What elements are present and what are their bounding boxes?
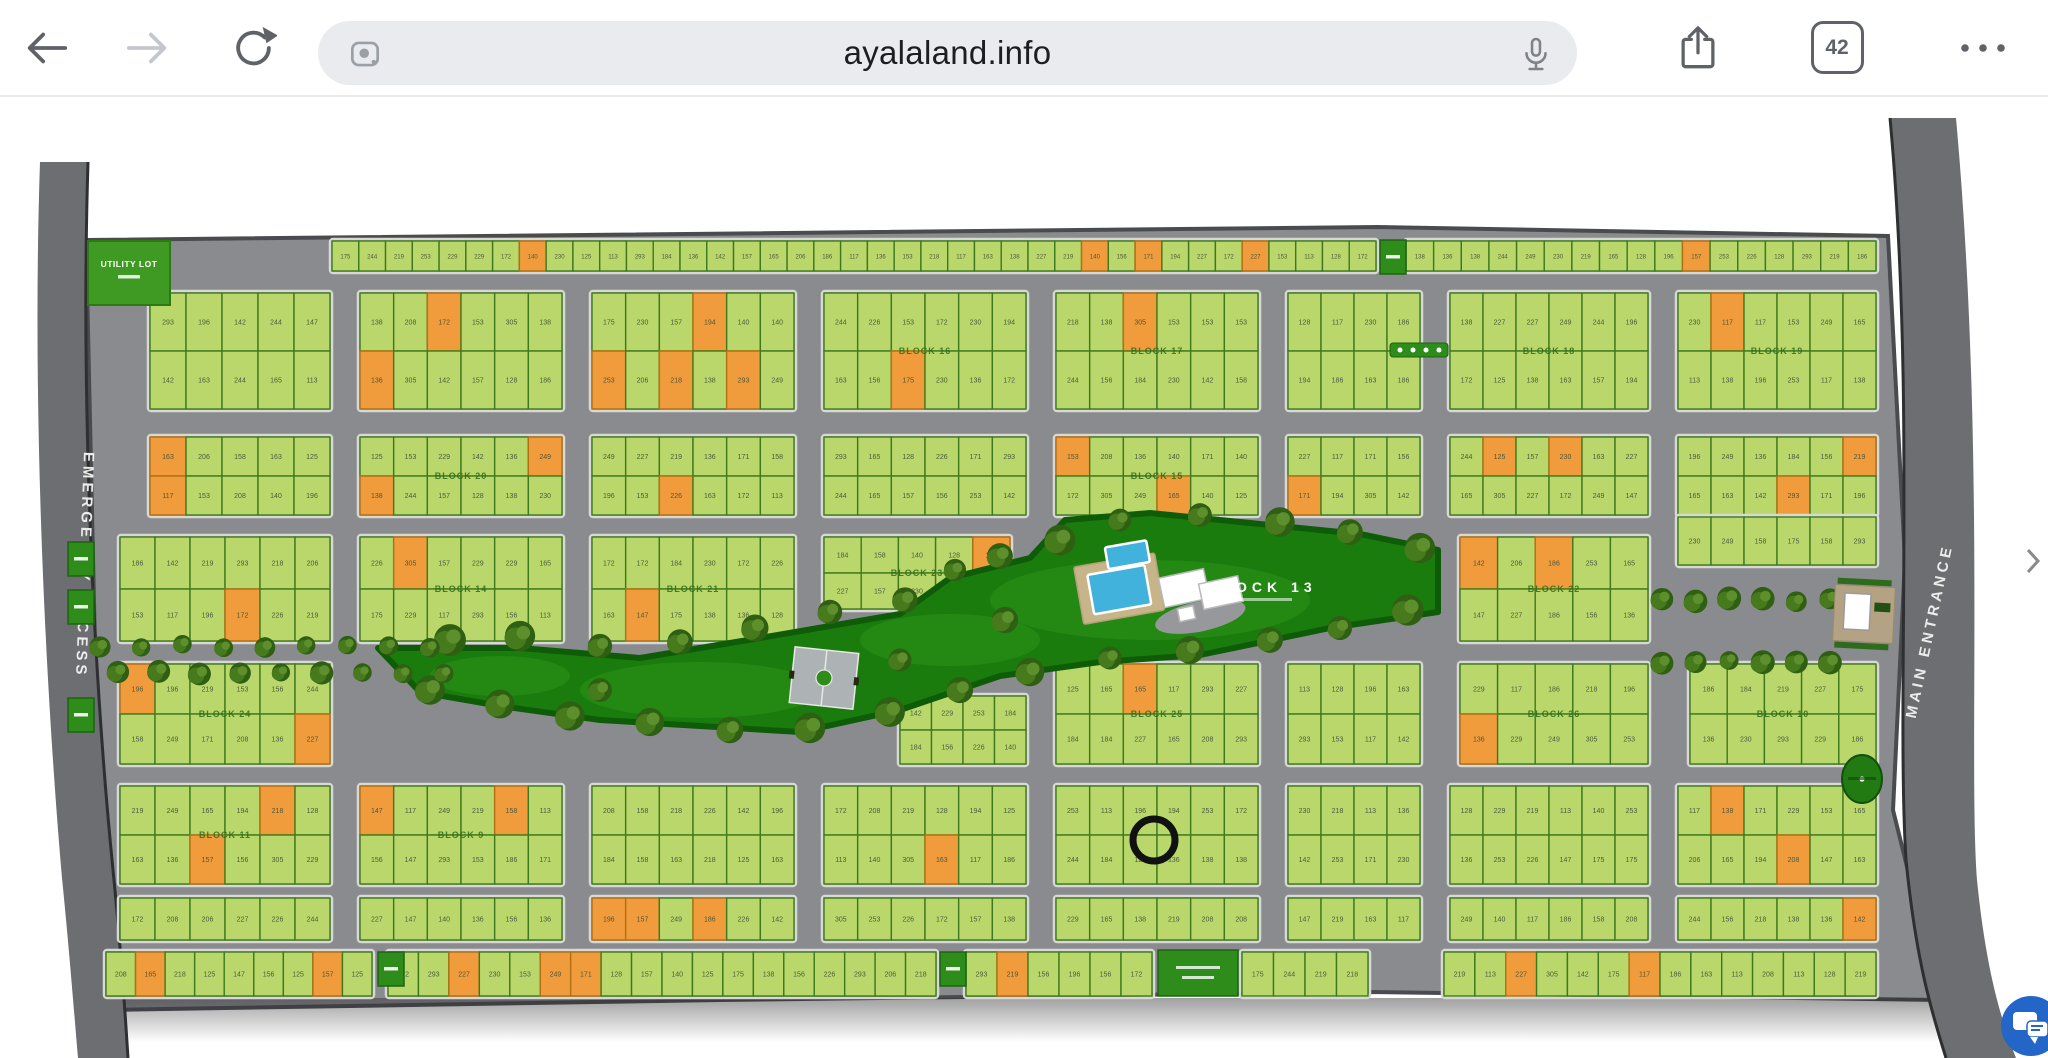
reload-icon: [231, 25, 277, 71]
svg-text:136: 136: [272, 737, 284, 744]
svg-text:163: 163: [1560, 378, 1572, 385]
svg-text:249: 249: [1722, 539, 1734, 546]
svg-text:165: 165: [1168, 493, 1180, 500]
svg-text:125: 125: [1003, 808, 1015, 815]
svg-text:165: 165: [1854, 808, 1866, 815]
svg-text:140: 140: [1494, 917, 1506, 924]
svg-text:249: 249: [550, 972, 562, 979]
svg-text:147: 147: [1560, 857, 1572, 864]
site-map[interactable]: EMERGENCY ACCESSMAIN ENTRANCE17524421925…: [0, 95, 2048, 1058]
svg-text:218: 218: [272, 808, 284, 815]
svg-text:206: 206: [795, 255, 806, 261]
svg-text:117: 117: [1511, 687, 1522, 694]
svg-text:165: 165: [1722, 857, 1734, 864]
svg-text:171: 171: [539, 857, 551, 864]
svg-text:229: 229: [1473, 687, 1485, 694]
svg-text:171: 171: [580, 972, 592, 979]
svg-text:219: 219: [132, 808, 144, 815]
svg-text:136: 136: [688, 255, 699, 261]
svg-text:163: 163: [162, 454, 174, 461]
svg-text:125: 125: [1494, 454, 1506, 461]
svg-text:157: 157: [670, 320, 682, 327]
svg-text:230: 230: [936, 378, 948, 385]
camera-lens-icon: [346, 35, 384, 73]
svg-text:172: 172: [1461, 378, 1473, 385]
svg-text:156: 156: [1100, 972, 1112, 979]
svg-text:165: 165: [769, 255, 780, 261]
svg-text:138: 138: [763, 972, 775, 979]
svg-text:226: 226: [936, 454, 948, 461]
svg-text:157: 157: [874, 589, 886, 596]
svg-text:172: 172: [835, 808, 847, 815]
svg-text:230: 230: [970, 320, 982, 327]
svg-text:194: 194: [237, 808, 249, 815]
svg-text:249: 249: [1821, 320, 1833, 327]
svg-text:158: 158: [234, 454, 246, 461]
svg-text:165: 165: [1854, 320, 1866, 327]
svg-text:165: 165: [869, 454, 881, 461]
svg-text:172: 172: [637, 561, 649, 568]
svg-text:186: 186: [506, 857, 518, 864]
svg-text:293: 293: [1299, 737, 1311, 744]
svg-text:226: 226: [824, 972, 836, 979]
svg-text:128: 128: [771, 613, 783, 620]
svg-text:249: 249: [1722, 454, 1734, 461]
svg-text:175: 175: [1852, 687, 1864, 694]
svg-text:113: 113: [1560, 808, 1571, 815]
svg-text:196: 196: [771, 808, 783, 815]
svg-text:125: 125: [1235, 493, 1247, 500]
svg-text:194: 194: [1755, 857, 1767, 864]
svg-text:147: 147: [1299, 917, 1311, 924]
svg-text:158: 158: [637, 808, 649, 815]
svg-text:163: 163: [704, 493, 716, 500]
svg-text:113: 113: [608, 255, 618, 261]
svg-text:136: 136: [704, 454, 716, 461]
svg-text:117: 117: [167, 613, 178, 620]
svg-text:140: 140: [438, 917, 450, 924]
svg-text:142: 142: [738, 808, 750, 815]
svg-text:219: 219: [1527, 808, 1539, 815]
svg-text:140: 140: [1090, 255, 1101, 261]
svg-text:305: 305: [1546, 972, 1558, 979]
svg-text:140: 140: [528, 255, 539, 261]
svg-text:128: 128: [1774, 255, 1785, 261]
svg-text:140: 140: [869, 857, 881, 864]
svg-text:186: 186: [1332, 378, 1344, 385]
svg-text:165: 165: [1608, 255, 1619, 261]
svg-text:136: 136: [371, 378, 383, 385]
svg-text:157: 157: [1527, 454, 1539, 461]
svg-text:117: 117: [1365, 737, 1376, 744]
svg-text:153: 153: [1788, 320, 1800, 327]
svg-text:184: 184: [1788, 454, 1800, 461]
svg-text:218: 218: [915, 972, 927, 979]
svg-text:230: 230: [1560, 454, 1572, 461]
svg-text:208: 208: [405, 320, 417, 327]
svg-text:218: 218: [929, 255, 940, 261]
svg-text:136: 136: [876, 255, 887, 261]
url-text[interactable]: ayalaland.info: [318, 34, 1577, 72]
svg-text:156: 156: [272, 687, 284, 694]
svg-text:128: 128: [1824, 972, 1836, 979]
svg-text:226: 226: [1747, 255, 1758, 261]
url-bar[interactable]: ayalaland.info: [318, 21, 1577, 85]
svg-text:156: 156: [1117, 255, 1128, 261]
back-arrow-icon: [23, 25, 69, 71]
svg-text:305: 305: [835, 917, 847, 924]
svg-text:156: 156: [237, 857, 249, 864]
svg-text:226: 226: [272, 917, 284, 924]
svg-text:230: 230: [539, 493, 551, 500]
svg-text:229: 229: [1067, 917, 1079, 924]
svg-text:171: 171: [1755, 808, 1767, 815]
svg-text:226: 226: [973, 745, 985, 752]
svg-text:BLOCK 26: BLOCK 26: [1528, 709, 1581, 719]
svg-text:138: 138: [1101, 320, 1113, 327]
svg-text:227: 227: [237, 917, 249, 924]
svg-text:158: 158: [506, 808, 518, 815]
svg-text:153: 153: [903, 255, 914, 261]
svg-text:136: 136: [1821, 917, 1833, 924]
svg-text:156: 156: [941, 745, 953, 752]
svg-text:253: 253: [869, 917, 881, 924]
svg-text:117: 117: [1332, 320, 1343, 327]
svg-text:172: 172: [132, 917, 144, 924]
svg-text:153: 153: [237, 687, 249, 694]
svg-text:229: 229: [1494, 808, 1506, 815]
svg-text:196: 196: [603, 493, 615, 500]
svg-text:142: 142: [715, 255, 726, 261]
svg-text:163: 163: [1398, 687, 1410, 694]
svg-text:293: 293: [438, 857, 450, 864]
svg-text:157: 157: [902, 493, 914, 500]
svg-text:171: 171: [970, 454, 982, 461]
svg-text:128: 128: [1331, 255, 1342, 261]
block-13-label: BLOCK 13: [1207, 579, 1316, 595]
svg-text:253: 253: [1202, 808, 1214, 815]
svg-text:244: 244: [1689, 917, 1701, 924]
svg-text:156: 156: [869, 378, 881, 385]
svg-text:186: 186: [1857, 255, 1868, 261]
svg-text:142: 142: [1473, 561, 1485, 568]
svg-text:305: 305: [1101, 493, 1113, 500]
svg-text:229: 229: [1814, 737, 1826, 744]
voice-search-button[interactable]: [1517, 35, 1555, 78]
svg-text:138: 138: [1461, 320, 1473, 327]
svg-text:142: 142: [1755, 493, 1767, 500]
svg-text:153: 153: [472, 857, 484, 864]
svg-text:229: 229: [405, 613, 417, 620]
svg-text:171: 171: [1143, 255, 1154, 261]
svg-text:165: 165: [1623, 561, 1635, 568]
svg-text:172: 172: [738, 493, 750, 500]
svg-text:157: 157: [472, 378, 484, 385]
svg-text:117: 117: [1168, 687, 1179, 694]
svg-text:113: 113: [1101, 808, 1112, 815]
svg-text:117: 117: [970, 857, 981, 864]
svg-text:165: 165: [539, 561, 551, 568]
svg-text:227: 227: [1235, 687, 1247, 694]
svg-text:142: 142: [1299, 857, 1311, 864]
svg-text:113: 113: [1304, 255, 1314, 261]
svg-text:113: 113: [1689, 378, 1700, 385]
svg-text:293: 293: [1802, 255, 1813, 261]
svg-text:219: 219: [307, 613, 319, 620]
svg-text:138: 138: [1134, 917, 1146, 924]
share-icon: [1675, 25, 1721, 71]
svg-text:156: 156: [371, 857, 383, 864]
svg-text:196: 196: [1623, 687, 1635, 694]
share-button[interactable]: [1670, 0, 1726, 95]
svg-text:230: 230: [1740, 737, 1752, 744]
svg-text:157: 157: [1593, 378, 1605, 385]
svg-text:227: 227: [637, 454, 649, 461]
forward-button[interactable]: [120, 0, 176, 95]
svg-text:171: 171: [1202, 454, 1214, 461]
svg-text:293: 293: [1777, 737, 1789, 744]
svg-text:184: 184: [1004, 711, 1016, 718]
svg-text:196: 196: [1134, 808, 1146, 815]
svg-text:156: 156: [1722, 917, 1734, 924]
svg-text:206: 206: [307, 561, 319, 568]
svg-text:253: 253: [1494, 857, 1506, 864]
svg-text:156: 156: [1101, 378, 1113, 385]
svg-text:140: 140: [1202, 493, 1214, 500]
svg-text:172: 172: [438, 320, 450, 327]
svg-text:206: 206: [1689, 857, 1701, 864]
svg-text:229: 229: [1511, 737, 1523, 744]
svg-text:171: 171: [1365, 857, 1377, 864]
svg-text:136: 136: [1703, 737, 1715, 744]
svg-text:219: 219: [670, 454, 682, 461]
svg-text:196: 196: [1755, 378, 1767, 385]
back-button[interactable]: [18, 0, 74, 95]
svg-text:140: 140: [738, 320, 750, 327]
svg-text:244: 244: [307, 917, 319, 924]
svg-text:293: 293: [162, 320, 174, 327]
svg-text:138: 138: [371, 493, 383, 500]
svg-text:138: 138: [1010, 255, 1021, 261]
svg-text:171: 171: [202, 737, 214, 744]
svg-text:253: 253: [603, 378, 615, 385]
svg-text:113: 113: [1299, 687, 1310, 694]
svg-text:113: 113: [540, 613, 551, 620]
svg-text:293: 293: [1854, 539, 1866, 546]
svg-text:175: 175: [1593, 857, 1605, 864]
svg-text:244: 244: [307, 687, 319, 694]
svg-text:186: 186: [1560, 917, 1572, 924]
svg-text:172: 172: [1560, 493, 1572, 500]
bottom-green-block: [1158, 950, 1238, 996]
svg-text:175: 175: [1252, 972, 1264, 979]
svg-text:219: 219: [1454, 972, 1466, 979]
svg-text:208: 208: [1762, 972, 1774, 979]
svg-text:172: 172: [936, 917, 948, 924]
svg-text:163: 163: [603, 613, 615, 620]
svg-text:206: 206: [202, 917, 214, 924]
svg-text:305: 305: [1494, 493, 1506, 500]
svg-text:208: 208: [603, 808, 615, 815]
svg-text:244: 244: [270, 320, 282, 327]
svg-text:128: 128: [1461, 808, 1473, 815]
svg-text:BLOCK 17: BLOCK 17: [1131, 346, 1184, 356]
svg-text:249: 249: [1134, 493, 1146, 500]
svg-text:186: 186: [1703, 687, 1715, 694]
svg-text:253: 253: [1788, 378, 1800, 385]
svg-text:293: 293: [635, 255, 646, 261]
svg-text:BLOCK 20: BLOCK 20: [435, 471, 488, 481]
svg-text:244: 244: [1067, 857, 1079, 864]
svg-text:157: 157: [970, 917, 982, 924]
svg-text:184: 184: [1067, 737, 1079, 744]
svg-text:117: 117: [849, 255, 859, 261]
svg-text:156: 156: [263, 972, 275, 979]
svg-text:186: 186: [1548, 561, 1560, 568]
svg-text:156: 156: [1398, 454, 1410, 461]
entrance-gate: [1832, 577, 1896, 650]
svg-text:293: 293: [1788, 493, 1800, 500]
svg-text:186: 186: [1548, 613, 1560, 620]
svg-text:206: 206: [884, 972, 896, 979]
svg-text:113: 113: [1365, 808, 1376, 815]
svg-text:128: 128: [472, 493, 484, 500]
svg-text:184: 184: [1101, 857, 1113, 864]
svg-text:253: 253: [1586, 561, 1598, 568]
svg-text:136: 136: [539, 917, 551, 924]
svg-text:128: 128: [1636, 255, 1647, 261]
svg-text:142: 142: [472, 454, 484, 461]
svg-text:153: 153: [198, 493, 210, 500]
svg-text:226: 226: [902, 917, 914, 924]
svg-text:153: 153: [1332, 737, 1344, 744]
svg-text:142: 142: [234, 320, 246, 327]
svg-text:293: 293: [854, 972, 866, 979]
svg-text:142: 142: [1854, 917, 1866, 924]
svg-text:157: 157: [742, 255, 753, 261]
svg-text:128: 128: [610, 972, 622, 979]
svg-text:196: 196: [1664, 255, 1675, 261]
svg-text:230: 230: [1553, 255, 1564, 261]
svg-text:230: 230: [489, 972, 501, 979]
svg-text:229: 229: [506, 561, 518, 568]
svg-text:138: 138: [1722, 378, 1734, 385]
svg-text:253: 253: [421, 255, 432, 261]
svg-text:163: 163: [835, 378, 847, 385]
svg-text:153: 153: [1202, 320, 1214, 327]
svg-text:156: 156: [1586, 613, 1598, 620]
svg-text:227: 227: [371, 917, 383, 924]
svg-text:113: 113: [772, 493, 783, 500]
svg-text:219: 219: [1168, 917, 1180, 924]
svg-text:140: 140: [1168, 454, 1180, 461]
svg-text:227: 227: [837, 589, 849, 596]
svg-text:227: 227: [1626, 454, 1638, 461]
svg-text:142: 142: [162, 378, 174, 385]
svg-text:153: 153: [1067, 454, 1079, 461]
svg-text:175: 175: [1788, 539, 1800, 546]
svg-text:219: 219: [1830, 255, 1841, 261]
svg-text:172: 172: [1235, 808, 1247, 815]
svg-text:208: 208: [234, 493, 246, 500]
svg-text:117: 117: [405, 808, 416, 815]
svg-text:138: 138: [1527, 378, 1539, 385]
green-dots-bar: [1390, 343, 1448, 357]
svg-text:218: 218: [1067, 320, 1079, 327]
svg-text:219: 219: [202, 561, 214, 568]
svg-text:175: 175: [1608, 972, 1620, 979]
svg-text:157: 157: [637, 917, 649, 924]
svg-text:208: 208: [1788, 857, 1800, 864]
svg-text:117: 117: [1639, 972, 1650, 979]
svg-text:BLOCK 15: BLOCK 15: [1131, 471, 1184, 481]
svg-text:249: 249: [1461, 917, 1473, 924]
svg-text:147: 147: [1473, 613, 1485, 620]
svg-text:218: 218: [1332, 808, 1344, 815]
menu-button[interactable]: [1952, 0, 2014, 95]
svg-text:227: 227: [1814, 687, 1826, 694]
svg-text:138: 138: [1003, 917, 1015, 924]
pocket-park-oval: [1842, 755, 1882, 803]
svg-text:138: 138: [704, 378, 716, 385]
svg-text:147: 147: [371, 808, 383, 815]
svg-text:153: 153: [405, 454, 417, 461]
svg-text:117: 117: [1398, 917, 1409, 924]
svg-text:186: 186: [1852, 737, 1864, 744]
svg-text:142: 142: [1398, 737, 1410, 744]
three-dots-icon: [1957, 38, 2009, 58]
svg-text:293: 293: [738, 378, 750, 385]
svg-text:147: 147: [405, 857, 417, 864]
svg-text:BLOCK 14: BLOCK 14: [435, 584, 488, 594]
svg-text:142: 142: [771, 917, 783, 924]
tab-switcher-button[interactable]: 42: [1808, 0, 1866, 95]
svg-text:244: 244: [1593, 320, 1605, 327]
svg-text:138: 138: [704, 613, 716, 620]
svg-text:230: 230: [1168, 378, 1180, 385]
svg-text:186: 186: [1548, 687, 1560, 694]
svg-text:156: 156: [1821, 454, 1833, 461]
svg-text:BLOCK 24: BLOCK 24: [199, 709, 252, 719]
svg-text:163: 163: [132, 857, 144, 864]
svg-text:163: 163: [983, 255, 994, 261]
svg-text:230: 230: [1299, 808, 1311, 815]
svg-text:153: 153: [519, 972, 531, 979]
svg-text:156: 156: [1038, 972, 1050, 979]
svg-text:244: 244: [835, 320, 847, 327]
svg-text:163: 163: [1700, 972, 1712, 979]
svg-text:186: 186: [1003, 857, 1015, 864]
svg-text:157: 157: [322, 972, 334, 979]
svg-text:184: 184: [662, 255, 673, 261]
svg-text:165: 165: [1168, 737, 1180, 744]
svg-text:153: 153: [902, 320, 914, 327]
svg-text:157: 157: [641, 972, 653, 979]
svg-text:196: 196: [198, 320, 210, 327]
svg-text:128: 128: [948, 553, 960, 560]
svg-text:226: 226: [272, 613, 284, 620]
svg-text:156: 156: [506, 917, 518, 924]
reload-button[interactable]: [226, 0, 282, 95]
svg-text:163: 163: [270, 454, 282, 461]
svg-text:305: 305: [405, 378, 417, 385]
svg-text:175: 175: [371, 613, 383, 620]
svg-text:UTILITY LOT: UTILITY LOT: [101, 259, 158, 269]
svg-text:113: 113: [1732, 972, 1743, 979]
svg-text:229: 229: [438, 454, 450, 461]
svg-text:128: 128: [307, 808, 319, 815]
svg-text:227: 227: [307, 737, 319, 744]
